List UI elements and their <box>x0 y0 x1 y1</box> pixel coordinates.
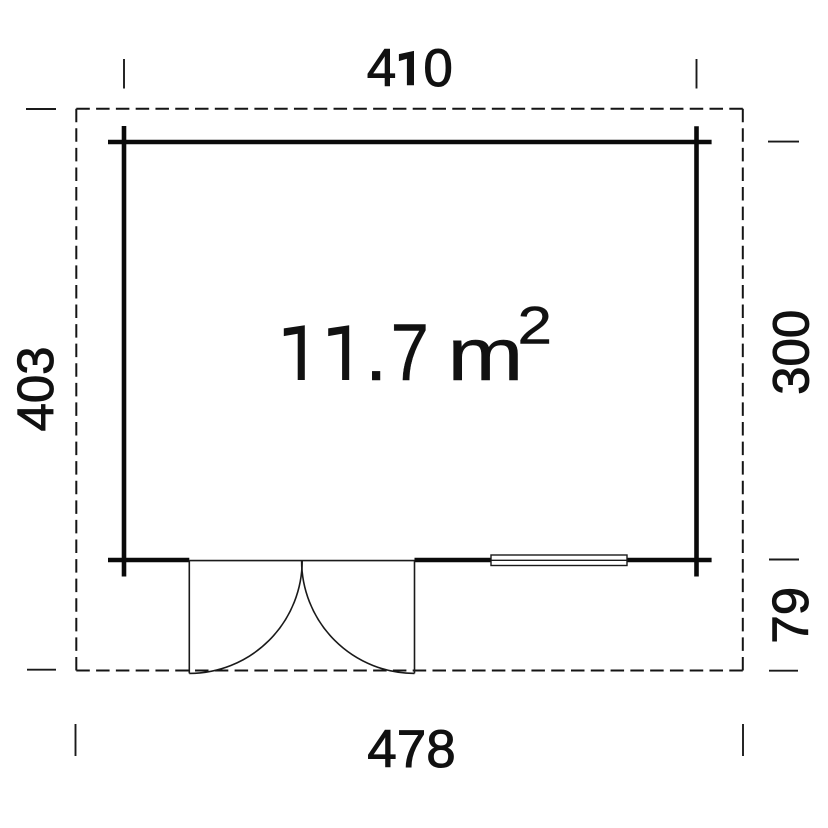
svg-text:m: m <box>447 313 523 396</box>
svg-text:0: 0 <box>423 39 452 98</box>
svg-text:.: . <box>365 308 388 398</box>
svg-text:4: 4 <box>367 39 396 98</box>
svg-text:7: 7 <box>391 307 429 398</box>
svg-text:403: 403 <box>7 346 64 431</box>
svg-text:478: 478 <box>367 720 455 779</box>
svg-text:2: 2 <box>518 297 552 356</box>
svg-text:300: 300 <box>763 310 820 395</box>
svg-text:79: 79 <box>762 587 819 644</box>
